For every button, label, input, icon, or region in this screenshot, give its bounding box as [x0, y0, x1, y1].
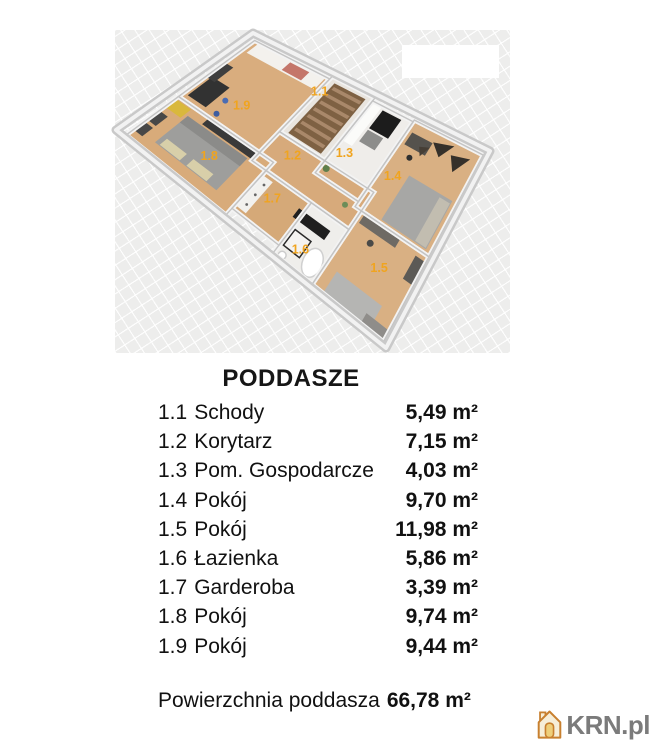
legend-row: 1.2Korytarz 7,15 m² — [158, 427, 478, 456]
room-label-1.9: 1.9 — [233, 98, 250, 112]
room-area: 9,70 m² — [406, 486, 478, 515]
furniture — [222, 98, 228, 104]
room-number: 1.3 — [158, 456, 187, 485]
total-area-value: 66,78 m² — [387, 689, 471, 713]
room-number: 1.6 — [158, 544, 187, 573]
furniture — [245, 203, 248, 206]
room-label-1.8: 1.8 — [201, 149, 218, 163]
room-label-1.2: 1.2 — [284, 149, 301, 163]
legend-row: 1.4Pokój 9,70 m² — [158, 486, 478, 515]
legend-row: 1.3Pom. Gospodarcze 4,03 m² — [158, 456, 478, 485]
room-number: 1.7 — [158, 573, 187, 602]
krn-watermark: KRN.pl — [536, 709, 650, 741]
room-area: 3,39 m² — [406, 573, 478, 602]
legend-row: 1.7Garderoba 3,39 m² — [158, 573, 478, 602]
furniture — [367, 240, 374, 247]
furniture — [214, 111, 220, 117]
room-area: 9,74 m² — [406, 602, 478, 631]
room-label-1.4: 1.4 — [384, 169, 401, 183]
room-area: 7,15 m² — [406, 427, 478, 456]
legend-row: 1.8Pokój 9,74 m² — [158, 602, 478, 631]
room-area: 4,03 m² — [406, 456, 478, 485]
room-name: Pokój — [194, 632, 247, 661]
room-name: Łazienka — [194, 544, 278, 573]
total-area: Powierzchnia poddasza 66,78 m² — [158, 689, 471, 713]
room-name: Pokój — [194, 602, 247, 631]
furniture — [263, 184, 266, 187]
legend-row: 1.9Pokój 9,44 m² — [158, 632, 478, 661]
furniture — [254, 193, 257, 196]
furniture — [342, 202, 348, 208]
room-name: Pom. Gospodarcze — [194, 456, 374, 485]
room-number: 1.9 — [158, 632, 187, 661]
room-label-1.6: 1.6 — [292, 242, 309, 256]
room-name: Pokój — [194, 515, 247, 544]
room-number: 1.5 — [158, 515, 187, 544]
room-legend: 1.1Schody 5,49 m² 1.2Korytarz 7,15 m² 1.… — [158, 398, 478, 661]
room-name: Pokój — [194, 486, 247, 515]
room-area: 11,98 m² — [395, 515, 478, 544]
room-number: 1.8 — [158, 602, 187, 631]
room-label-1.3: 1.3 — [336, 146, 353, 160]
room-name: Schody — [194, 398, 264, 427]
room-label-1.5: 1.5 — [370, 261, 387, 275]
furniture — [406, 155, 412, 161]
room-label-1.7: 1.7 — [264, 192, 281, 206]
house-icon — [536, 709, 563, 741]
room-number: 1.2 — [158, 427, 187, 456]
room-name: Korytarz — [194, 427, 272, 456]
room-area: 5,49 m² — [406, 398, 478, 427]
room-area: 9,44 m² — [406, 632, 478, 661]
room-area: 5,86 m² — [406, 544, 478, 573]
listing-floorplan-image: 1.11.21.31.41.51.61.71.81.9 PODDASZE 1.1… — [0, 0, 656, 750]
watermark-text: KRN.pl — [566, 710, 650, 741]
masked-label-overlay — [402, 45, 499, 78]
room-number: 1.1 — [158, 398, 187, 427]
room-label-1.1: 1.1 — [311, 84, 328, 98]
legend-row: 1.6Łazienka 5,86 m² — [158, 544, 478, 573]
room-number: 1.4 — [158, 486, 187, 515]
floor-title: PODDASZE — [121, 365, 461, 393]
legend-row: 1.5Pokój 11,98 m² — [158, 515, 478, 544]
room-name: Garderoba — [194, 573, 294, 602]
legend-row: 1.1Schody 5,49 m² — [158, 398, 478, 427]
total-area-label: Powierzchnia poddasza — [158, 689, 380, 713]
